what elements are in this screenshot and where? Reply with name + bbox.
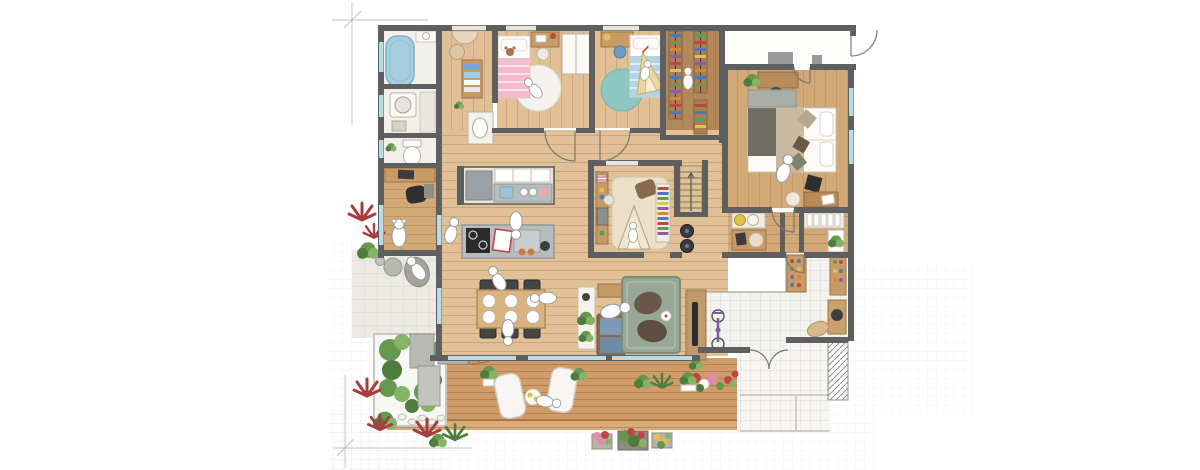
- kettle: [540, 241, 550, 251]
- laptop: [735, 232, 747, 245]
- wall-segment: [378, 25, 728, 31]
- pink-bowl: [540, 188, 549, 197]
- counter-sink: [500, 187, 513, 198]
- wall-segment: [702, 160, 708, 217]
- wall-segment: [674, 160, 680, 217]
- bookshelf: [656, 184, 670, 242]
- wall-segment: [378, 84, 436, 89]
- wall-segment: [728, 207, 772, 213]
- living-area: [577, 277, 680, 356]
- teddy-bear: [506, 48, 514, 56]
- pink-blanket: [498, 58, 530, 98]
- floor-plan-svg: [0, 0, 1200, 470]
- toy-box: [597, 208, 608, 225]
- toy-desk: [596, 172, 608, 244]
- play-chair: [604, 195, 614, 205]
- staircase: [680, 166, 702, 214]
- pillow-2: [633, 38, 659, 49]
- kitchen-back-counter: [462, 167, 554, 204]
- orange-bowl-2: [528, 249, 535, 256]
- clothes-rack-lower: [694, 100, 707, 134]
- wardrobe: [562, 34, 590, 74]
- toilet-tank: [403, 140, 421, 147]
- sofa: [597, 314, 625, 356]
- desk-flowers: [550, 33, 556, 39]
- wall-segment: [674, 212, 708, 217]
- wall-segment: [378, 250, 440, 256]
- person-figure: [683, 68, 693, 90]
- bed-pillow-1: [820, 112, 833, 136]
- tv-screen: [692, 302, 698, 346]
- olive-blanket: [748, 108, 776, 156]
- patio-terrace: [352, 250, 440, 338]
- wall-segment: [588, 160, 594, 258]
- person-figure: [502, 320, 514, 346]
- wood-side-table: [598, 284, 624, 297]
- kids-chair-2: [614, 46, 626, 58]
- wall-segment: [589, 31, 595, 128]
- planter-red-green: [618, 428, 648, 450]
- laundry-counter: [420, 92, 435, 132]
- wall-segment: [670, 252, 682, 258]
- wall-segment: [660, 135, 725, 140]
- wall-segment: [588, 252, 644, 258]
- planter-pink: [592, 431, 612, 449]
- wall-segment: [492, 128, 544, 133]
- clothes-rack-left: [669, 31, 682, 119]
- kitchen-island: [462, 225, 554, 258]
- wall-segment: [722, 25, 856, 31]
- cutting-board: [493, 229, 513, 252]
- toilet-bowl: [404, 147, 421, 166]
- wall-segment: [492, 31, 498, 103]
- wall-segment: [794, 207, 854, 213]
- wall-segment: [698, 347, 750, 353]
- wall-segment: [848, 213, 854, 341]
- round-stool: [450, 45, 465, 60]
- kids-chair-1: [537, 48, 549, 60]
- wall-segment: [722, 64, 728, 213]
- wall-segment: [630, 128, 663, 133]
- slat-shelf: [804, 212, 844, 228]
- fridge: [466, 171, 492, 200]
- plant-frame: [828, 230, 844, 252]
- desk-toy-yellow: [604, 34, 611, 41]
- planter-yellow: [652, 433, 672, 449]
- desk-chair-round: [749, 233, 763, 247]
- toy-flag: [597, 175, 607, 182]
- study-shelf: [424, 184, 434, 198]
- wall-segment: [780, 213, 785, 252]
- basin-yellow: [735, 215, 746, 226]
- wall-segment: [804, 252, 854, 258]
- bath-sink: [423, 33, 430, 40]
- orange-bowl-1: [519, 249, 526, 256]
- person-figure: [628, 222, 637, 242]
- person-figure: [510, 212, 522, 240]
- wall-segment: [799, 213, 804, 252]
- wall-segment: [722, 252, 786, 258]
- round-stool-master: [786, 192, 800, 206]
- person-figure: [530, 292, 556, 304]
- vanity-basin: [473, 118, 488, 138]
- laundry-basket: [392, 121, 406, 131]
- master-desk-top: [758, 72, 798, 88]
- wall-segment: [457, 166, 464, 205]
- shelf-vase: [582, 293, 590, 301]
- wall-segment: [378, 163, 436, 168]
- basin-white: [748, 215, 759, 226]
- wall-segment: [660, 25, 666, 135]
- bag-on-bench: [831, 309, 843, 321]
- stepping-stone: [384, 258, 402, 276]
- shoe-cabinet-right: [830, 255, 846, 295]
- drink-1: [528, 393, 533, 398]
- wall-segment: [378, 133, 436, 138]
- clothes-rack-right: [694, 31, 707, 93]
- headboard-bench: [748, 90, 796, 107]
- floor-plan-illustration: [0, 0, 1200, 470]
- wall-segment: [786, 337, 848, 343]
- upper-boards: [495, 169, 550, 182]
- study-monitor: [398, 170, 414, 180]
- bed-pillow-2: [820, 142, 833, 166]
- cooktop: [466, 228, 490, 253]
- approach-hatch-strip: [828, 338, 848, 400]
- wall-segment: [576, 128, 595, 133]
- wall-segment: [722, 64, 794, 70]
